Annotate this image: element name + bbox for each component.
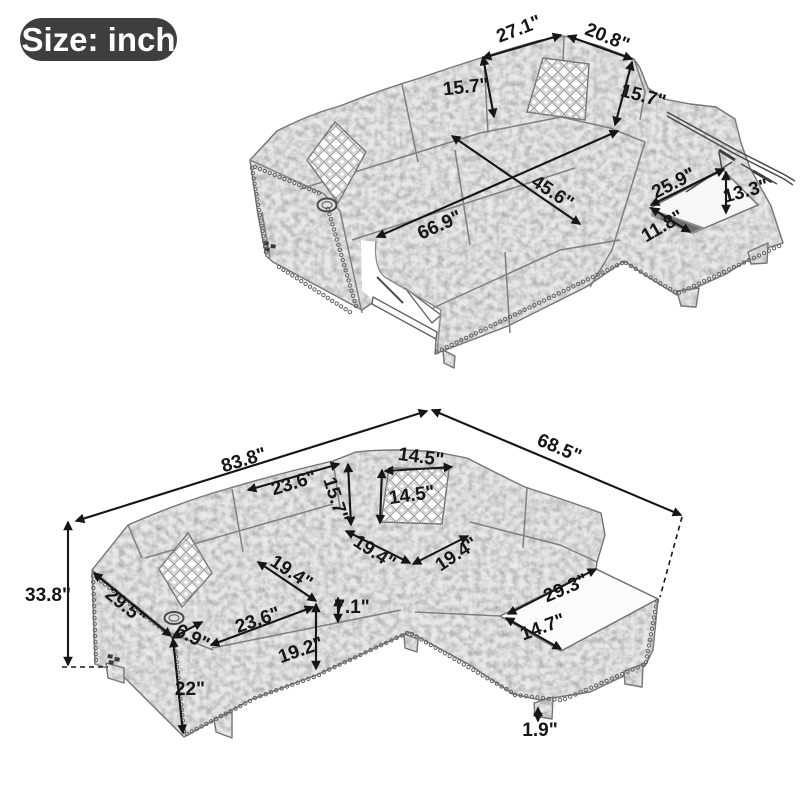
svg-text:1.9": 1.9" — [522, 720, 557, 741]
svg-text:7.1": 7.1" — [334, 597, 369, 618]
svg-text:22": 22" — [175, 679, 205, 700]
svg-text:33.8": 33.8" — [25, 585, 71, 606]
